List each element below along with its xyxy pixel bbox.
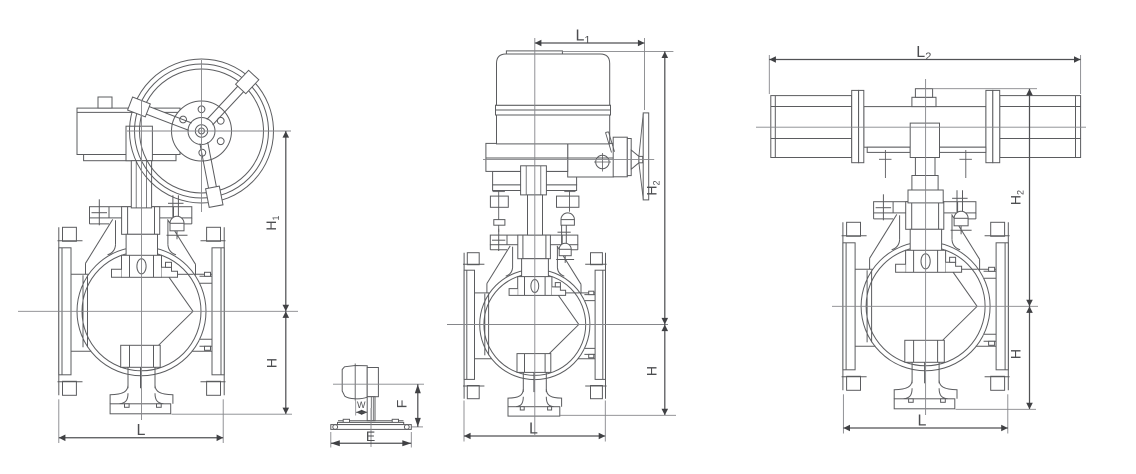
svg-text:L: L xyxy=(529,421,538,438)
svg-text:E: E xyxy=(366,428,375,444)
svg-text:H: H xyxy=(264,358,280,368)
svg-text:H: H xyxy=(644,366,660,376)
svg-text:L: L xyxy=(137,422,146,439)
svg-text:F: F xyxy=(394,400,410,409)
svg-text:H: H xyxy=(1008,349,1024,359)
svg-text:L: L xyxy=(918,413,927,430)
svg-text:W: W xyxy=(357,400,366,410)
